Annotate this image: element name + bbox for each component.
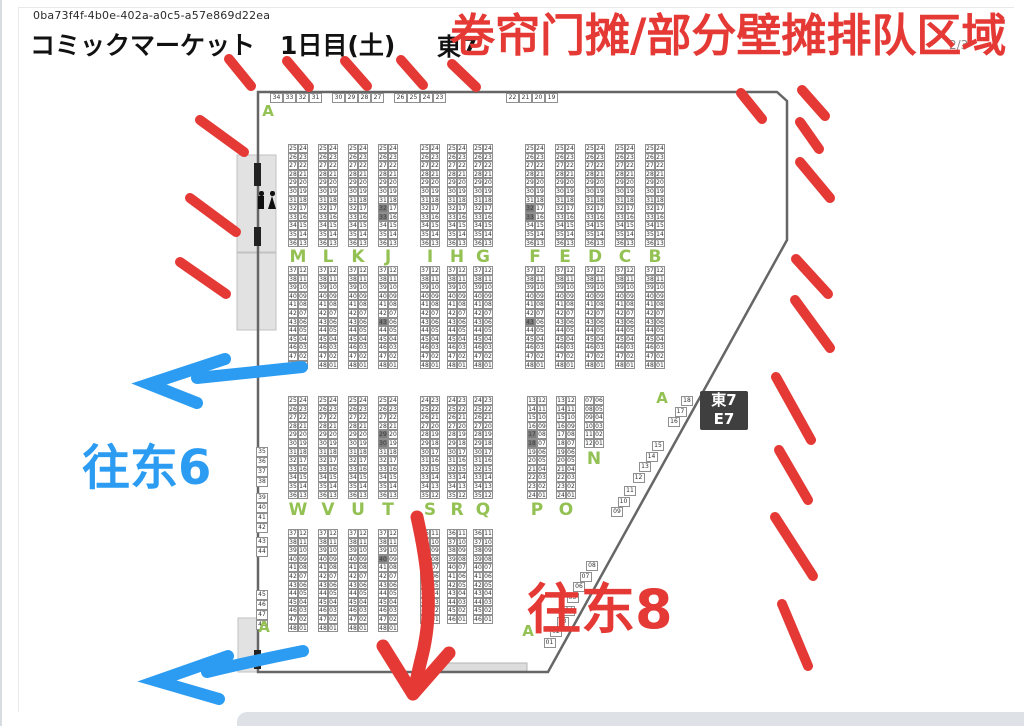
booth-cell: 18 bbox=[625, 196, 635, 205]
booth-cell: 41 bbox=[318, 300, 328, 309]
booth-cell: 27 bbox=[447, 422, 457, 431]
booth-cell: 32 bbox=[525, 204, 535, 213]
booth-cell: 22 bbox=[328, 161, 338, 170]
booth-cell: 27 bbox=[288, 161, 298, 170]
booth-cell: 44 bbox=[378, 326, 388, 335]
booth-cell: 41 bbox=[447, 572, 457, 581]
booth-cell: 03 bbox=[457, 343, 467, 352]
booth-cell: 35 bbox=[256, 447, 268, 457]
booth-cell: 15 bbox=[388, 221, 398, 230]
booth-cell: 12 bbox=[457, 266, 467, 275]
booth-cell: 37 bbox=[348, 266, 358, 275]
booth-cell: 28 bbox=[447, 430, 457, 439]
booth-cell: 20 bbox=[388, 430, 398, 439]
booth-cell: 06 bbox=[594, 396, 604, 405]
booth-cell: 23 bbox=[430, 153, 440, 162]
booth-cell: 45 bbox=[378, 598, 388, 607]
booth-cell: 24 bbox=[556, 491, 566, 500]
booth-cell: 23 bbox=[655, 153, 665, 162]
booth-cell: 44 bbox=[256, 547, 268, 557]
booth-cell: 37 bbox=[645, 266, 655, 275]
booth-cell: 13 bbox=[565, 239, 575, 248]
booth-cell: 19 bbox=[388, 187, 398, 196]
booth-cell: 27 bbox=[585, 161, 595, 170]
booth-cell: 30 bbox=[318, 187, 328, 196]
booth-cell: 40 bbox=[555, 292, 565, 301]
booth-cell: 07 bbox=[388, 309, 398, 318]
booth-cell: 45 bbox=[447, 606, 457, 615]
booth-cell: 05 bbox=[430, 581, 440, 590]
booth-cell: 04 bbox=[430, 335, 440, 344]
booth-cell: 20 bbox=[328, 430, 338, 439]
booth-cell: 36 bbox=[288, 491, 298, 500]
booth-cell: 03 bbox=[358, 343, 368, 352]
booth-cell: 32 bbox=[296, 93, 309, 103]
booth-cell: 28 bbox=[525, 170, 535, 179]
booth-cell: 29 bbox=[420, 439, 430, 448]
booth-cell: 10 bbox=[565, 283, 575, 292]
booth-cell: 11 bbox=[298, 275, 308, 284]
booth-cell: 11 bbox=[457, 275, 467, 284]
booth-cell: 39 bbox=[256, 493, 268, 503]
booth-cell: 36 bbox=[348, 491, 358, 500]
booth-cell: 09 bbox=[457, 546, 467, 555]
booth-cell: 26 bbox=[447, 153, 457, 162]
booth-cell: 04 bbox=[358, 598, 368, 607]
booth-cell: 09 bbox=[625, 292, 635, 301]
booth-cell: 24 bbox=[565, 144, 575, 153]
booth-cell: 37 bbox=[525, 266, 535, 275]
booth-cell: 39 bbox=[645, 283, 655, 292]
booth-cell: 16 bbox=[388, 465, 398, 474]
booth-cell: 21 bbox=[388, 170, 398, 179]
booth-cell: 44 bbox=[447, 598, 457, 607]
booth-cell: 06 bbox=[483, 318, 493, 327]
booth-cell: 34 bbox=[645, 221, 655, 230]
booth-cell: 27 bbox=[555, 161, 565, 170]
booth-cell: 18 bbox=[535, 196, 545, 205]
booth-cell: 42 bbox=[318, 572, 328, 581]
booth-cell: 05 bbox=[457, 581, 467, 590]
booth-cell: 22 bbox=[565, 161, 575, 170]
booth-cell: 30 bbox=[447, 448, 457, 457]
booth-cell: 04 bbox=[655, 335, 665, 344]
booth-cell: 19 bbox=[483, 430, 493, 439]
booth-cell: 48 bbox=[420, 361, 430, 370]
booth-cell: 45 bbox=[348, 598, 358, 607]
booth-cell: 18 bbox=[595, 196, 605, 205]
booth-cell: 34 bbox=[525, 221, 535, 230]
booth-cell: 47 bbox=[615, 352, 625, 361]
booth-cell: 14 bbox=[430, 230, 440, 239]
booth-cell: 21 bbox=[388, 422, 398, 431]
booth-cell: 18 bbox=[328, 448, 338, 457]
booth-cell: 17 bbox=[328, 204, 338, 213]
booth-cell: 15 bbox=[556, 413, 566, 422]
booth-cell: 04 bbox=[298, 335, 308, 344]
booth-cell: 29 bbox=[447, 178, 457, 187]
booth-cell: 01 bbox=[388, 361, 398, 370]
booth-cell: 14 bbox=[595, 230, 605, 239]
booth-cell: 29 bbox=[378, 430, 388, 439]
booth-cell: 27 bbox=[615, 161, 625, 170]
booth-cell: 33 bbox=[283, 93, 296, 103]
booth-cell: 15 bbox=[625, 221, 635, 230]
booth-cell: 03 bbox=[537, 473, 547, 482]
booth-cell: 12 bbox=[328, 266, 338, 275]
booth-cell: 45 bbox=[420, 335, 430, 344]
booth-cell: 05 bbox=[328, 589, 338, 598]
booth-cell: 31 bbox=[420, 196, 430, 205]
booth-cell: 25 bbox=[645, 144, 655, 153]
booth-cell: 04 bbox=[595, 335, 605, 344]
booth-cell: 16 bbox=[483, 213, 493, 222]
booth-cell: 06 bbox=[535, 318, 545, 327]
booth-cell: 47 bbox=[318, 615, 328, 624]
booth-cell: 12 bbox=[358, 266, 368, 275]
booth-cell: 34 bbox=[615, 221, 625, 230]
booth-cell: 20 bbox=[457, 178, 467, 187]
booth-cell: 28 bbox=[473, 170, 483, 179]
booth-cell: 26 bbox=[473, 413, 483, 422]
booth-cell: 11 bbox=[430, 275, 440, 284]
booth-cell: 01 bbox=[457, 361, 467, 370]
booth-cell: 33 bbox=[348, 213, 358, 222]
booth-cell: 34 bbox=[555, 221, 565, 230]
row-letter-J: J bbox=[378, 247, 398, 267]
booth-cell: 35 bbox=[525, 230, 535, 239]
wall-block-a-label: A bbox=[258, 102, 278, 120]
booth-cell: 16 bbox=[527, 422, 537, 431]
booth-cell: 34 bbox=[378, 473, 388, 482]
booth-cell: 28 bbox=[318, 422, 328, 431]
row-letter-L: L bbox=[318, 247, 338, 267]
booth-cell: 25 bbox=[318, 144, 328, 153]
booth-cell: 42 bbox=[447, 309, 457, 318]
booth-cell: 37 bbox=[473, 266, 483, 275]
booth-cell: 43 bbox=[348, 581, 358, 590]
booth-cell: 39 bbox=[378, 546, 388, 555]
booth-cell: 37 bbox=[318, 266, 328, 275]
booth-cell: 21 bbox=[556, 465, 566, 474]
booth-cell: 29 bbox=[345, 93, 358, 103]
booth-cell: 04 bbox=[328, 598, 338, 607]
booth-cell: 08 bbox=[625, 300, 635, 309]
booth-cell: 30 bbox=[615, 187, 625, 196]
booth-cell: 40 bbox=[288, 555, 298, 564]
booth-cell: 23 bbox=[457, 396, 467, 405]
booth-cell: 40 bbox=[256, 503, 268, 513]
booth-cell: 06 bbox=[457, 572, 467, 581]
booth-cell: 41 bbox=[420, 300, 430, 309]
booth-cell: 01 bbox=[565, 361, 575, 370]
row-letter-N: N bbox=[584, 449, 604, 469]
booth-cell: 44 bbox=[585, 326, 595, 335]
booth-cell: 24 bbox=[328, 396, 338, 405]
booth-cell: 42 bbox=[473, 309, 483, 318]
booth-cell: 38 bbox=[473, 546, 483, 555]
booth-cell: 16 bbox=[655, 213, 665, 222]
booth-cell: 48 bbox=[348, 361, 358, 370]
booth-cell: 19 bbox=[328, 439, 338, 448]
booth-cell: 09 bbox=[537, 422, 547, 431]
booth-cell: 23 bbox=[535, 153, 545, 162]
row-letter-G: G bbox=[473, 247, 493, 267]
booth-cell: 29 bbox=[447, 439, 457, 448]
booth-cell: 31 bbox=[348, 448, 358, 457]
booth-cell: 32 bbox=[447, 204, 457, 213]
booth-cell: 35 bbox=[288, 230, 298, 239]
booth-cell: 05 bbox=[483, 581, 493, 590]
booth-cell: 08 bbox=[298, 563, 308, 572]
booth-cell: 37 bbox=[555, 266, 565, 275]
booth-cell: 14 bbox=[457, 230, 467, 239]
booth-cell: 45 bbox=[555, 335, 565, 344]
booth-cell: 10 bbox=[298, 283, 308, 292]
booth-cell: 25 bbox=[447, 144, 457, 153]
booth-cell: 13 bbox=[430, 482, 440, 491]
booth-cell: 20 bbox=[556, 456, 566, 465]
booth-cell: 27 bbox=[473, 422, 483, 431]
booth-cell: 44 bbox=[378, 589, 388, 598]
booth-cell: 40 bbox=[420, 563, 430, 572]
booth-cell: 28 bbox=[447, 170, 457, 179]
booth-cell: 04 bbox=[594, 413, 604, 422]
booth-cell: 25 bbox=[378, 396, 388, 405]
booth-cell: 33 bbox=[473, 473, 483, 482]
booth-cell: 16 bbox=[457, 213, 467, 222]
booth-cell: 23 bbox=[625, 153, 635, 162]
booth-cell: 29 bbox=[525, 178, 535, 187]
booth-cell: 41 bbox=[288, 563, 298, 572]
booth-cell: 34 bbox=[318, 221, 328, 230]
booth-cell: 24 bbox=[655, 144, 665, 153]
booth-cell: 38 bbox=[318, 275, 328, 284]
booth-cell: 30 bbox=[420, 448, 430, 457]
booth-cell: 26 bbox=[615, 153, 625, 162]
booth-cell: 32 bbox=[473, 204, 483, 213]
booth-cell: 32 bbox=[378, 204, 388, 213]
booth-cell: 13 bbox=[430, 239, 440, 248]
booth-cell: 23 bbox=[565, 153, 575, 162]
booth-cell: 22 bbox=[483, 161, 493, 170]
booth-cell: 37 bbox=[447, 266, 457, 275]
booth-cell: 29 bbox=[420, 178, 430, 187]
booth-cell: 18 bbox=[556, 439, 566, 448]
booth-cell: 37 bbox=[378, 266, 388, 275]
booth-cell: 43 bbox=[420, 318, 430, 327]
booth-cell: 32 bbox=[318, 204, 328, 213]
booth-cell: 43 bbox=[555, 318, 565, 327]
booth-cell: 31 bbox=[473, 456, 483, 465]
booth-cell: 05 bbox=[594, 405, 604, 414]
booth-cell: 36 bbox=[318, 239, 328, 248]
booth-cell: 46 bbox=[525, 343, 535, 352]
booth-cell: 19 bbox=[358, 187, 368, 196]
booth-cell: 35 bbox=[585, 230, 595, 239]
booth-cell: 26 bbox=[378, 153, 388, 162]
booth-cell: 30 bbox=[420, 187, 430, 196]
booth-cell: 30 bbox=[288, 187, 298, 196]
booth-cell: 12 bbox=[388, 529, 398, 538]
booth-cell: 29 bbox=[348, 178, 358, 187]
booth-cell: 19 bbox=[430, 430, 440, 439]
booth-cell: 28 bbox=[420, 430, 430, 439]
row-letter-R: R bbox=[447, 500, 467, 520]
booth-cell: 17 bbox=[298, 204, 308, 213]
booth-cell: 13 bbox=[625, 239, 635, 248]
booth-cell: 11 bbox=[595, 275, 605, 284]
booth-cell: 26 bbox=[348, 153, 358, 162]
booth-cell: 21 bbox=[358, 170, 368, 179]
booth-cell: 14 bbox=[483, 473, 493, 482]
booth-cell: 05 bbox=[430, 326, 440, 335]
booth-cell: 20 bbox=[430, 422, 440, 431]
booth-cell: 01 bbox=[537, 491, 547, 500]
booth-cell: 46 bbox=[318, 606, 328, 615]
booth-cell: 24 bbox=[527, 491, 537, 500]
booth-cell: 21 bbox=[457, 413, 467, 422]
booth-cell: 41 bbox=[256, 513, 268, 523]
booth-cell: 45 bbox=[318, 598, 328, 607]
booth-cell: 45 bbox=[473, 335, 483, 344]
booth-cell: 46 bbox=[447, 615, 457, 624]
booth-cell: 18 bbox=[358, 448, 368, 457]
booth-cell: 37 bbox=[318, 529, 328, 538]
booth-cell: 06 bbox=[625, 318, 635, 327]
booth-cell: 29 bbox=[378, 178, 388, 187]
booth-cell: 28 bbox=[615, 170, 625, 179]
booth-cell: 25 bbox=[407, 93, 420, 103]
booth-cell: 36 bbox=[420, 239, 430, 248]
booth-cell: 17 bbox=[675, 407, 687, 417]
booth-cell: 44 bbox=[555, 326, 565, 335]
booth-cell: 47 bbox=[525, 352, 535, 361]
booth-cell: 07 bbox=[430, 563, 440, 572]
booth-cell: 38 bbox=[420, 546, 430, 555]
booth-cell: 01 bbox=[655, 361, 665, 370]
booth-cell: 48 bbox=[288, 624, 298, 633]
booth-cell: 24 bbox=[420, 93, 433, 103]
booth-cell: 22 bbox=[595, 161, 605, 170]
booth-cell: 07 bbox=[537, 439, 547, 448]
booth-cell: 34 bbox=[288, 221, 298, 230]
booth-cell: 14 bbox=[358, 230, 368, 239]
booth-cell: 40 bbox=[447, 563, 457, 572]
booth-cell: 07 bbox=[535, 309, 545, 318]
row-letter-U: U bbox=[348, 500, 368, 520]
booth-cell: 01 bbox=[430, 615, 440, 624]
booth-cell: 08 bbox=[595, 300, 605, 309]
booth-cell: 11 bbox=[584, 430, 594, 439]
booth-cell: 43 bbox=[447, 318, 457, 327]
booth-cell: 40 bbox=[420, 292, 430, 301]
booth-cell: 04 bbox=[388, 335, 398, 344]
booth-cell: 09 bbox=[483, 546, 493, 555]
booth-cell: 19 bbox=[298, 187, 308, 196]
booth-cell: 24 bbox=[473, 396, 483, 405]
east8-label: 往东8 bbox=[527, 565, 673, 644]
booth-cell: 45 bbox=[378, 335, 388, 344]
booth-cell: 07 bbox=[584, 396, 594, 405]
booth-cell: 14 bbox=[328, 230, 338, 239]
booth-cell: 08 bbox=[655, 300, 665, 309]
booth-cell: 23 bbox=[430, 396, 440, 405]
booth-cell: 27 bbox=[447, 161, 457, 170]
booth-cell: 44 bbox=[288, 326, 298, 335]
booth-cell: 20 bbox=[328, 178, 338, 187]
booth-cell: 47 bbox=[348, 352, 358, 361]
booth-cell: 33 bbox=[378, 465, 388, 474]
booth-cell: 32 bbox=[348, 456, 358, 465]
booth-cell: 05 bbox=[328, 326, 338, 335]
booth-cell: 46 bbox=[645, 343, 655, 352]
booth-cell: 23 bbox=[388, 405, 398, 414]
booth-cell: 48 bbox=[473, 361, 483, 370]
booth-cell: 33 bbox=[525, 213, 535, 222]
booth-cell: 12 bbox=[483, 266, 493, 275]
booth-cell: 42 bbox=[420, 581, 430, 590]
east6-label: 往东6 bbox=[82, 428, 211, 498]
booth-cell: 39 bbox=[288, 546, 298, 555]
row-letter-D: D bbox=[585, 247, 605, 267]
booth-cell: 11 bbox=[457, 529, 467, 538]
booth-cell: 01 bbox=[298, 361, 308, 370]
booth-cell: 01 bbox=[566, 491, 576, 500]
booth-cell: 18 bbox=[565, 196, 575, 205]
booth-cell: 19 bbox=[358, 439, 368, 448]
booth-cell: 35 bbox=[473, 491, 483, 500]
booth-cell: 10 bbox=[388, 546, 398, 555]
booth-cell: 08 bbox=[584, 405, 594, 414]
booth-cell: 45 bbox=[447, 335, 457, 344]
booth-cell: 02 bbox=[430, 606, 440, 615]
booth-cell: 34 bbox=[473, 482, 483, 491]
booth-cell: 10 bbox=[358, 283, 368, 292]
booth-cell: 39 bbox=[585, 283, 595, 292]
booth-cell: 10 bbox=[328, 283, 338, 292]
row-letter-S: S bbox=[420, 500, 440, 520]
booth-cell: 33 bbox=[585, 213, 595, 222]
booth-cell: 15 bbox=[328, 473, 338, 482]
booth-cell: 17 bbox=[527, 430, 537, 439]
booth-cell: 28 bbox=[645, 170, 655, 179]
booth-cell: 17 bbox=[298, 456, 308, 465]
booth-cell: 25 bbox=[420, 405, 430, 414]
booth-cell: 13 bbox=[298, 491, 308, 500]
booth-cell: 35 bbox=[420, 230, 430, 239]
booth-cell: 01 bbox=[328, 361, 338, 370]
booth-cell: 39 bbox=[318, 546, 328, 555]
booth-cell: 10 bbox=[457, 283, 467, 292]
booth-cell: 33 bbox=[420, 213, 430, 222]
booth-cell: 40 bbox=[447, 292, 457, 301]
booth-cell: 17 bbox=[625, 204, 635, 213]
booth-cell: 22 bbox=[527, 473, 537, 482]
booth-cell: 39 bbox=[447, 555, 457, 564]
booth-cell: 14 bbox=[388, 482, 398, 491]
booth-cell: 13 bbox=[298, 239, 308, 248]
booth-cell: 03 bbox=[328, 343, 338, 352]
booth-cell: 20 bbox=[535, 178, 545, 187]
booth-cell: 27 bbox=[420, 422, 430, 431]
booth-cell: 19 bbox=[430, 187, 440, 196]
booth-cell: 15 bbox=[527, 413, 537, 422]
row-letter-K: K bbox=[348, 247, 368, 267]
booth-cell: 41 bbox=[288, 300, 298, 309]
female-icon bbox=[268, 191, 276, 210]
booth-cell: 22 bbox=[535, 161, 545, 170]
